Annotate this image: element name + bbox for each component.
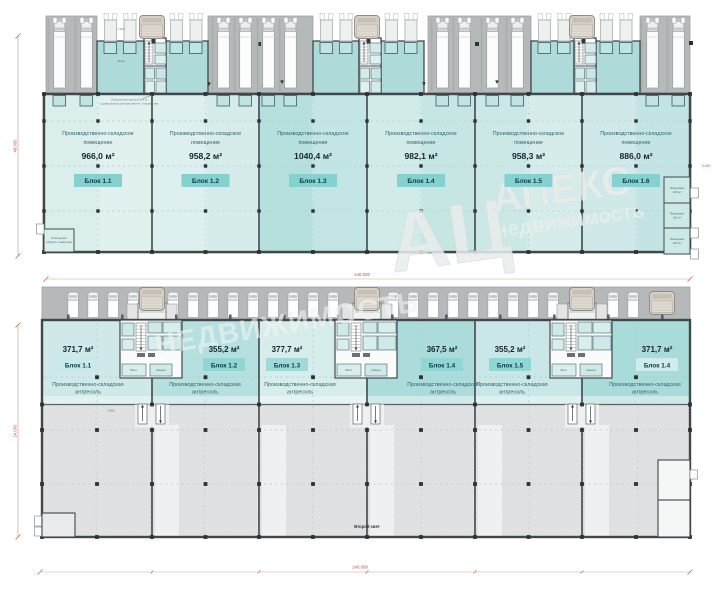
svg-text:Производственно-складское: Производственно-складское [600, 131, 671, 137]
svg-text:с доводчиком для автоматич. от: с доводчиком для автоматич. открывания [100, 102, 159, 106]
svg-text:антресоль: антресоль [287, 390, 313, 396]
svg-text:антресоль: антресоль [75, 390, 101, 396]
svg-text:371,7 м²: 371,7 м² [642, 345, 673, 354]
svg-text:Блок 1.1: Блок 1.1 [84, 178, 111, 185]
svg-text:помещение: помещение [299, 140, 328, 146]
svg-text:антресоль: антресоль [632, 390, 658, 396]
svg-text:Производственно-складское: Производственно-складское [385, 131, 456, 137]
svg-text:камера: камера [586, 368, 596, 372]
svg-text:антресоль: антресоль [192, 390, 218, 396]
svg-text:140.000: 140.000 [354, 272, 370, 277]
svg-text:Блок 1.3: Блок 1.3 [274, 362, 301, 369]
svg-text:355,2 м²: 355,2 м² [209, 345, 240, 354]
svg-text:1.500: 1.500 [107, 409, 115, 413]
svg-text:Блок 1.4: Блок 1.4 [644, 362, 671, 369]
svg-text:Блок 1.6: Блок 1.6 [622, 178, 649, 185]
svg-text:Помещение: Помещение [670, 237, 685, 241]
svg-text:Блок 1.1: Блок 1.1 [65, 362, 92, 369]
svg-text:18,6 м²: 18,6 м² [673, 216, 682, 220]
svg-text:Производственно-складская: Производственно-складская [407, 382, 478, 388]
svg-text:24.000: 24.000 [13, 424, 18, 437]
svg-text:Производственно-складская: Производственно-складская [609, 382, 680, 388]
svg-text:камера: камера [371, 368, 381, 372]
svg-text:Блок 1.4: Блок 1.4 [429, 362, 456, 369]
svg-text:18,6 м²: 18,6 м² [673, 190, 682, 194]
svg-text:355,2 м²: 355,2 м² [495, 345, 526, 354]
svg-text:Производственно-складское: Производственно-складское [62, 131, 133, 137]
svg-text:367,5 м²: 367,5 м² [427, 345, 458, 354]
svg-text:371,7 м²: 371,7 м² [63, 345, 94, 354]
svg-text:958,2 м²: 958,2 м² [189, 151, 222, 161]
svg-text:Второй свет: Второй свет [354, 524, 380, 529]
svg-text:Блок 1.2: Блок 1.2 [211, 362, 238, 369]
svg-text:Блок 1.4: Блок 1.4 [407, 178, 434, 185]
svg-text:966,0 м²: 966,0 м² [81, 151, 114, 161]
svg-text:Помещение: Помещение [670, 186, 685, 190]
svg-text:уборочн. инвентаря: уборочн. инвентаря [46, 240, 72, 244]
svg-text:Производственно-складская: Производственно-складская [52, 382, 123, 388]
svg-text:Помещение: Помещение [670, 212, 685, 216]
svg-text:Производственно-складская: Производственно-складская [476, 382, 547, 388]
svg-text:1040,4 м²: 1040,4 м² [294, 151, 332, 161]
svg-text:982,1 м²: 982,1 м² [404, 151, 437, 161]
svg-text:Производственно-складское: Производственно-складское [493, 131, 564, 137]
svg-text:18,6 м²: 18,6 м² [673, 241, 682, 245]
svg-text:140.000: 140.000 [352, 565, 368, 570]
svg-text:помещение: помещение [622, 140, 651, 146]
svg-text:камера: камера [156, 368, 166, 372]
svg-text:Вент.: Вент. [131, 368, 138, 372]
svg-text:886,0 м²: 886,0 м² [619, 151, 652, 161]
svg-text:Зона: Зона [118, 59, 125, 63]
svg-text:Блок 1.5: Блок 1.5 [497, 362, 524, 369]
svg-text:Вент.: Вент. [346, 368, 353, 372]
svg-text:Производственно-складская: Производственно-складская [169, 382, 240, 388]
svg-text:антресоль: антресоль [430, 390, 456, 396]
svg-text:помещение: помещение [191, 140, 220, 146]
svg-text:помещение: помещение [407, 140, 436, 146]
svg-text:помещение: помещение [514, 140, 543, 146]
svg-text:48.000: 48.000 [13, 139, 18, 152]
svg-text:Блок 1.5: Блок 1.5 [515, 178, 542, 185]
svg-text:Вент.: Вент. [561, 368, 568, 372]
svg-text:377,7 м²: 377,7 м² [272, 345, 303, 354]
svg-text:Блок 1.2: Блок 1.2 [192, 178, 219, 185]
svg-text:0.000: 0.000 [702, 164, 711, 168]
svg-text:Производственно-складское: Производственно-складское [170, 131, 241, 137]
svg-text:1.200: 1.200 [117, 27, 125, 31]
svg-text:антресоль: антресоль [499, 390, 525, 396]
svg-text:Блок 1.3: Блок 1.3 [299, 178, 326, 185]
svg-text:958,3 м²: 958,3 м² [512, 151, 545, 161]
svg-text:Производственно-складское: Производственно-складское [277, 131, 348, 137]
svg-text:помещение: помещение [84, 140, 113, 146]
svg-text:Производственно-складская: Производственно-складская [264, 382, 335, 388]
